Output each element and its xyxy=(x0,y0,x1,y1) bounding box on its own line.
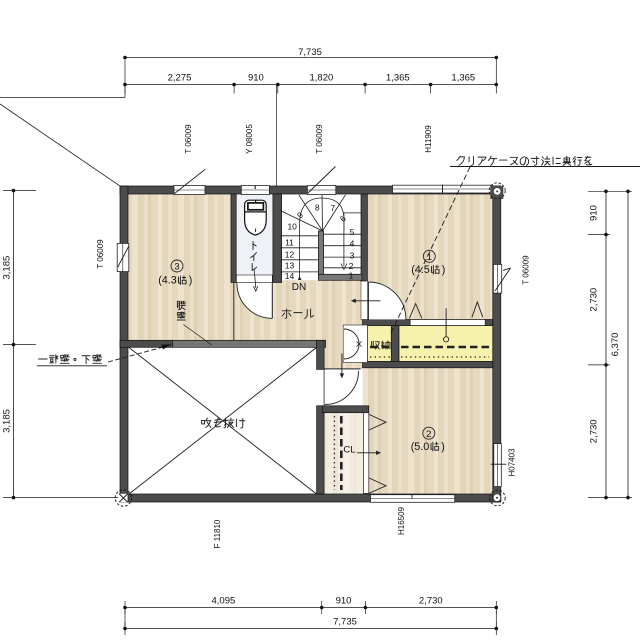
svg-text:6,370: 6,370 xyxy=(610,333,621,357)
svg-text:2: 2 xyxy=(426,429,431,440)
svg-text:CL: CL xyxy=(343,445,355,456)
svg-text:12: 12 xyxy=(285,250,295,260)
svg-text:): ) xyxy=(442,264,446,276)
svg-text:1,365: 1,365 xyxy=(386,73,410,84)
svg-text:T 06009: T 06009 xyxy=(522,255,531,285)
svg-text:910: 910 xyxy=(589,205,600,221)
svg-text:): ) xyxy=(441,441,445,453)
svg-text:2,730: 2,730 xyxy=(589,419,600,443)
svg-text:2: 2 xyxy=(349,261,354,271)
svg-text:7: 7 xyxy=(330,203,335,213)
svg-text:H16509: H16509 xyxy=(397,506,406,535)
svg-text:T 06009: T 06009 xyxy=(96,239,105,269)
svg-text:Y 08005: Y 08005 xyxy=(245,124,254,154)
svg-text:H07403: H07403 xyxy=(508,448,517,477)
svg-text:4: 4 xyxy=(350,239,355,249)
svg-text:1,820: 1,820 xyxy=(310,73,334,84)
svg-text:910: 910 xyxy=(248,73,264,84)
svg-text:7,735: 7,735 xyxy=(333,617,357,628)
svg-text:14: 14 xyxy=(285,271,295,281)
svg-text:910: 910 xyxy=(336,596,352,607)
svg-text:3,185: 3,185 xyxy=(2,409,13,433)
svg-text:5: 5 xyxy=(350,227,355,237)
svg-text:3: 3 xyxy=(174,262,179,273)
svg-text:2,275: 2,275 xyxy=(168,73,192,84)
svg-text:2,730: 2,730 xyxy=(419,596,443,607)
svg-text:7,735: 7,735 xyxy=(298,47,322,58)
svg-text:3: 3 xyxy=(350,251,355,261)
svg-text:T 06009: T 06009 xyxy=(315,124,324,154)
svg-text:): ) xyxy=(189,275,193,287)
svg-text:F 11810: F 11810 xyxy=(213,519,222,548)
svg-text:13: 13 xyxy=(285,260,295,270)
svg-text:11: 11 xyxy=(285,238,294,248)
svg-text:4,095: 4,095 xyxy=(212,596,236,607)
svg-text:3,185: 3,185 xyxy=(2,256,13,280)
svg-text:T 06009: T 06009 xyxy=(184,124,193,154)
svg-text:(5.0: (5.0 xyxy=(411,441,430,453)
svg-text:1,365: 1,365 xyxy=(451,73,475,84)
svg-text:8: 8 xyxy=(315,203,320,213)
svg-text:H11909: H11909 xyxy=(424,125,433,153)
svg-text:10: 10 xyxy=(287,221,297,231)
svg-text:2,730: 2,730 xyxy=(589,288,600,312)
svg-text:1: 1 xyxy=(349,271,354,281)
svg-text:DN: DN xyxy=(292,282,306,293)
svg-text:(4.3: (4.3 xyxy=(158,275,177,287)
